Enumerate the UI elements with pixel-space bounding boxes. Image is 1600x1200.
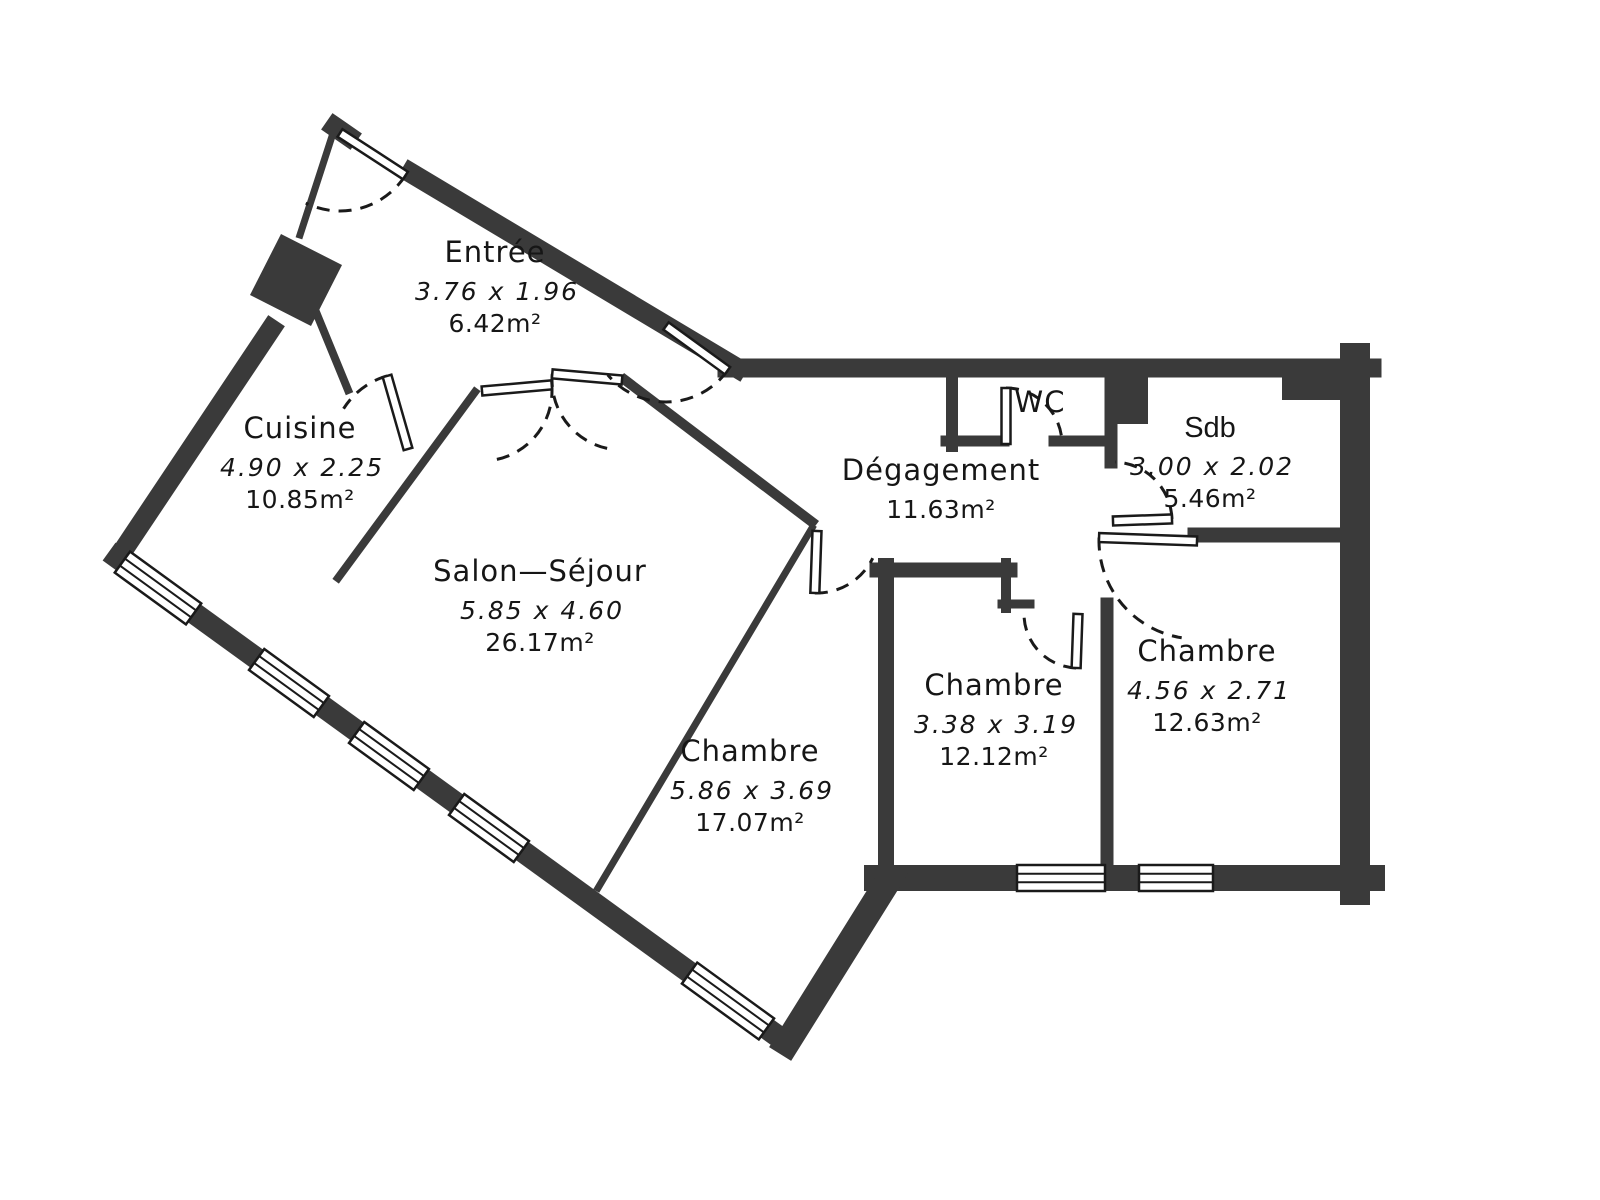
room-dimensions: 3.38 x 3.19 [914, 710, 1078, 739]
door-swing-arc [1024, 616, 1076, 668]
window [249, 649, 329, 717]
window-frame [249, 649, 329, 717]
window-frame [1139, 865, 1213, 891]
door-swing-arc [552, 374, 616, 450]
wall-segment [300, 127, 335, 235]
door-leaf [810, 531, 821, 593]
room-label: Salon—Séjour5.85 x 4.6026.17m² [433, 554, 647, 657]
door-leaf-rect [482, 380, 553, 395]
door [1024, 614, 1082, 668]
door-leaf-rect [338, 129, 408, 179]
door-leaf-rect [1072, 614, 1083, 668]
room-area: 11.63m² [886, 495, 995, 524]
window [349, 722, 429, 790]
room-area: 26.17m² [485, 628, 594, 657]
door-leaf [1002, 388, 1011, 444]
door-leaf-rect [383, 375, 413, 451]
door-leaf [1099, 533, 1197, 545]
room-name: Chambre [1137, 634, 1276, 668]
room-name: WC [1015, 385, 1066, 419]
room-dimensions: 3.00 x 2.02 [1130, 452, 1294, 481]
door [482, 380, 553, 460]
window-frame [115, 552, 201, 625]
door-leaf-rect [1099, 533, 1197, 545]
room-dimensions: 4.56 x 2.71 [1127, 676, 1291, 705]
room-name: Entrée [444, 235, 545, 269]
wall-segment [316, 312, 348, 390]
window [449, 794, 529, 862]
window [115, 552, 201, 625]
door-swing-arc [488, 385, 552, 461]
window [1139, 865, 1213, 891]
room-label: WC [1015, 385, 1066, 419]
door [552, 369, 623, 449]
room-dimensions: 3.76 x 1.96 [415, 277, 579, 306]
room-area: 5.46m² [1163, 484, 1256, 513]
room-label: Sdb3.00 x 2.025.46m² [1130, 412, 1294, 513]
window-frame [449, 794, 529, 862]
room-name: Salon—Séjour [433, 554, 647, 588]
door [810, 531, 872, 593]
window [1017, 865, 1105, 891]
wall-segment [787, 878, 890, 1043]
room-name: Cuisine [243, 411, 356, 445]
wall-segment [625, 380, 812, 522]
door-leaf [482, 380, 553, 395]
window-frame [1017, 865, 1105, 891]
door [608, 322, 730, 402]
door-leaf [338, 129, 408, 179]
door-leaf [1113, 514, 1172, 525]
room-dimensions: 5.86 x 3.69 [670, 776, 834, 805]
room-area: 6.42m² [448, 309, 541, 338]
room-label: Chambre5.86 x 3.6917.07m² [670, 734, 834, 837]
room-name: Chambre [924, 668, 1063, 702]
room-area: 10.85m² [245, 485, 354, 514]
room-label: Dégagement11.63m² [842, 453, 1040, 524]
door-leaf-rect [810, 531, 821, 593]
room-dimensions: 5.85 x 4.60 [460, 596, 624, 625]
door-leaf-rect [552, 369, 623, 384]
room-name: Chambre [680, 734, 819, 768]
door-leaf-rect [1002, 388, 1011, 444]
room-area: 12.63m² [1152, 708, 1261, 737]
window [682, 963, 774, 1040]
door-leaf [552, 369, 623, 384]
floor-plan-svg: Entrée3.76 x 1.966.42m²Cuisine4.90 x 2.2… [0, 0, 1600, 1200]
door-leaf [383, 375, 413, 451]
room-name: Sdb [1184, 412, 1236, 444]
room-label: Chambre3.38 x 3.1912.12m² [914, 668, 1078, 771]
wall-block [1115, 360, 1148, 424]
window-frame [682, 963, 774, 1040]
door-swing-arc [815, 558, 873, 593]
window-frame [349, 722, 429, 790]
door-leaf [1072, 614, 1083, 668]
room-dimensions: 4.90 x 2.25 [220, 453, 384, 482]
room-label: Cuisine4.90 x 2.2510.85m² [220, 411, 384, 514]
room-label: Chambre4.56 x 2.7112.63m² [1127, 634, 1291, 737]
wall-block [250, 234, 342, 326]
room-area: 17.07m² [695, 808, 804, 837]
door-leaf-rect [1113, 514, 1172, 525]
door [1099, 533, 1197, 638]
room-name: Dégagement [842, 453, 1040, 487]
floor-plan: Entrée3.76 x 1.966.42m²Cuisine4.90 x 2.2… [0, 0, 1600, 1200]
wall-segment [338, 392, 475, 578]
room-area: 12.12m² [939, 742, 1048, 771]
wall-block [1282, 368, 1345, 400]
